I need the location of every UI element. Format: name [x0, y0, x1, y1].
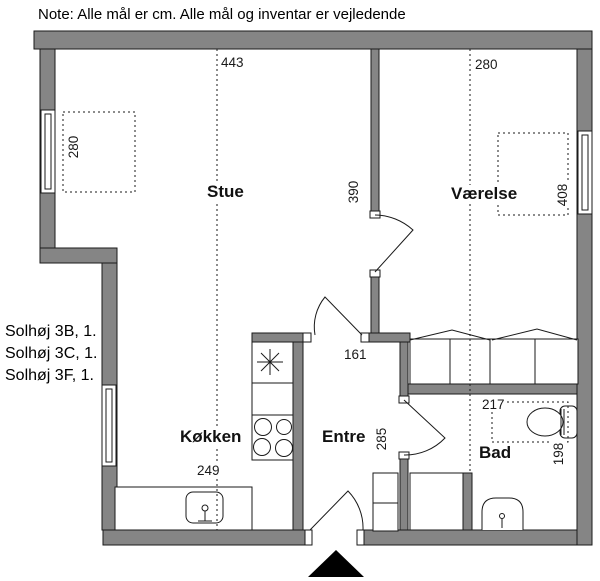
address-block: Solhøj 3B, 1. Solhøj 3C, 1. Solhøj 3F, 1… — [5, 321, 97, 387]
kitchen-counter-tall — [252, 342, 293, 460]
wall-bad-north — [408, 384, 577, 394]
front-door-swing — [310, 491, 363, 530]
dim-label-bed-length: 408 — [556, 183, 570, 208]
wardrobe — [410, 329, 578, 384]
entrance-arrow-icon — [308, 550, 364, 577]
wall-kitchen-stub — [252, 333, 303, 342]
window-right — [578, 131, 592, 214]
dim-label-stue-length: 390 — [347, 180, 361, 205]
jamb — [370, 270, 380, 277]
stue-door-swing — [314, 297, 362, 335]
wall-top — [34, 31, 592, 49]
address-line: Solhøj 3F, 1. — [5, 365, 97, 387]
wall-koekken-entre — [293, 342, 303, 530]
wall-entre-bad-upper — [400, 342, 408, 396]
room-label-koekken: Køkken — [178, 428, 243, 446]
wall-notch — [40, 248, 117, 263]
dim-label-stue-width: 443 — [220, 56, 245, 70]
floor-plan-page: Note: Alle mål er cm. Alle mål og invent… — [0, 0, 600, 581]
room-label-entre: Entre — [320, 428, 367, 446]
dim-label-entre-width: 161 — [343, 348, 368, 362]
jamb — [303, 333, 311, 342]
dim-label-entre-depth: 285 — [375, 427, 389, 452]
wall-right — [577, 49, 592, 545]
address-line: Solhøj 3C, 1. — [5, 343, 97, 365]
room-label-vaerelse: Værelse — [449, 185, 519, 203]
windows — [41, 110, 592, 466]
dim-label-bad-width: 217 — [481, 398, 506, 412]
room-label-stue: Stue — [205, 183, 246, 201]
window-left-lower — [102, 385, 116, 466]
jamb — [370, 211, 380, 218]
bath-sink-icon — [482, 498, 523, 530]
window-left-upper — [41, 110, 55, 193]
dim-label-vaerelse-width: 280 — [474, 58, 499, 72]
wall-entre-north — [369, 333, 410, 342]
entre-cabinet — [373, 473, 398, 531]
kitchen-counter-bottom — [115, 487, 252, 530]
note-text: Note: Alle mål er cm. Alle mål og invent… — [38, 7, 406, 23]
bad-door-swing — [404, 400, 445, 455]
vaerelse-door-swing — [375, 215, 413, 272]
front-door-opening — [305, 529, 364, 546]
kitchen-sink-icon — [186, 492, 223, 523]
toilet-icon — [527, 406, 577, 438]
utility-cabinet — [410, 473, 463, 530]
jamb — [305, 530, 312, 545]
wardrobe-door-mark — [492, 329, 577, 340]
floor-plan-drawing — [0, 0, 600, 581]
jamb — [357, 530, 364, 545]
address-line: Solhøj 3B, 1. — [5, 321, 97, 343]
dim-label-koekken-width: 249 — [196, 464, 221, 478]
wall-stue-vaerelse-upper — [371, 49, 379, 211]
jamb — [399, 396, 409, 403]
jamb — [361, 333, 369, 342]
room-label-bad: Bad — [477, 444, 513, 462]
dim-label-stue-furniture: 280 — [67, 135, 81, 160]
walls — [34, 31, 592, 545]
wall-entre-bad-lower — [400, 459, 408, 530]
dim-label-bad-depth: 198 — [552, 442, 566, 467]
wall-bad-stub — [463, 473, 472, 530]
wall-stue-vaerelse-lower — [371, 277, 379, 335]
